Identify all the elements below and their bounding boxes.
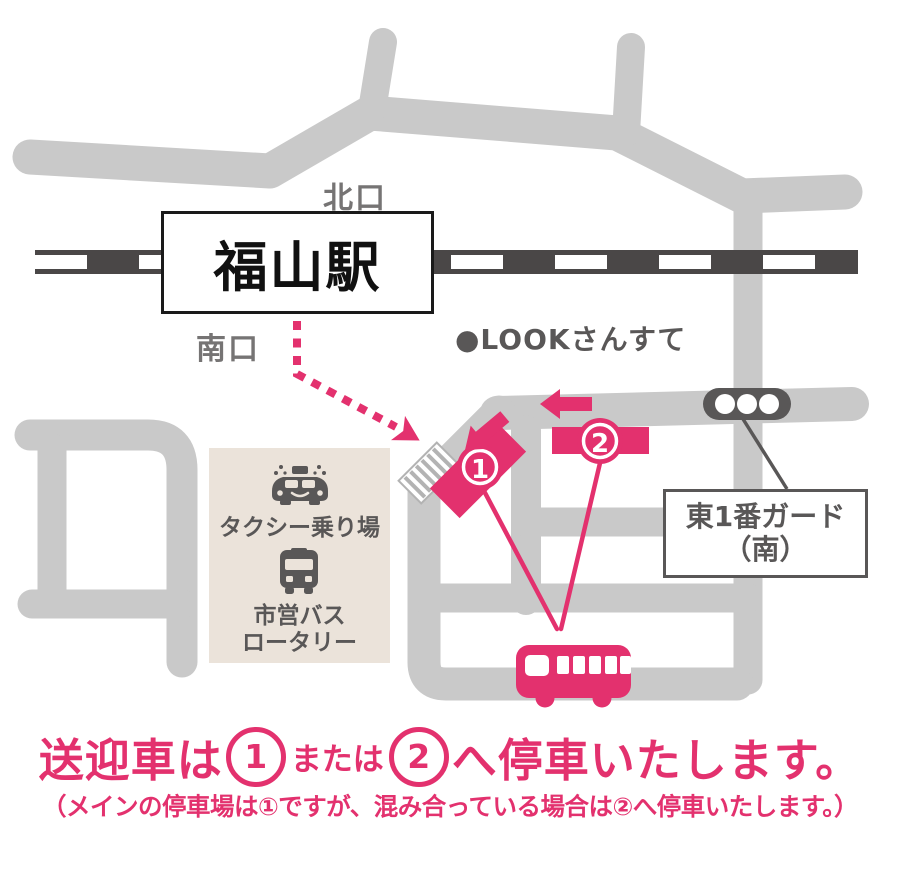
caption-main: 送迎車は 1 または 2 へ停車いたします。 [0, 724, 900, 789]
caption-circled-1: 1 [226, 727, 286, 787]
north-exit-label: 北口 [323, 173, 387, 217]
caption-circled-2: 2 [389, 727, 449, 787]
marker-2-number: 2 [591, 429, 609, 459]
route-dashed-arrow [297, 321, 427, 453]
caption-main-prefix: 送迎車は [39, 724, 223, 789]
caption-main-middle: または [291, 734, 384, 779]
caption-main-suffix: へ停車いたします。 [452, 724, 862, 789]
taxi-stand-label: タクシー乗り場 [209, 508, 390, 542]
guard-label-box: 東1番ガード （南） [663, 489, 868, 578]
station-name: 福山駅 [214, 223, 382, 302]
caption-sub: （メインの停車場は①ですが、混み合っている場合は②へ停車いたします。） [0, 788, 900, 823]
south-exit-label: 南口 [196, 324, 260, 368]
station-box: 福山駅 [161, 211, 434, 314]
marker-1-number: 1 [471, 455, 489, 485]
taxi-icon [268, 464, 332, 508]
guard-label-line2: （南） [723, 534, 807, 566]
bus-rotary-label-line2: ロータリー [209, 623, 390, 657]
city-bus-icon [280, 548, 318, 595]
roads [30, 42, 852, 684]
map-canvas: 1 2 [0, 0, 900, 869]
terminal-area: タクシー乗り場 市営バス ロータリー [209, 448, 390, 663]
landmark-look-label: ●LOOKさんすて [455, 318, 686, 358]
railway-line [35, 250, 858, 274]
guard-label-line1: 東1番ガード [686, 501, 845, 533]
